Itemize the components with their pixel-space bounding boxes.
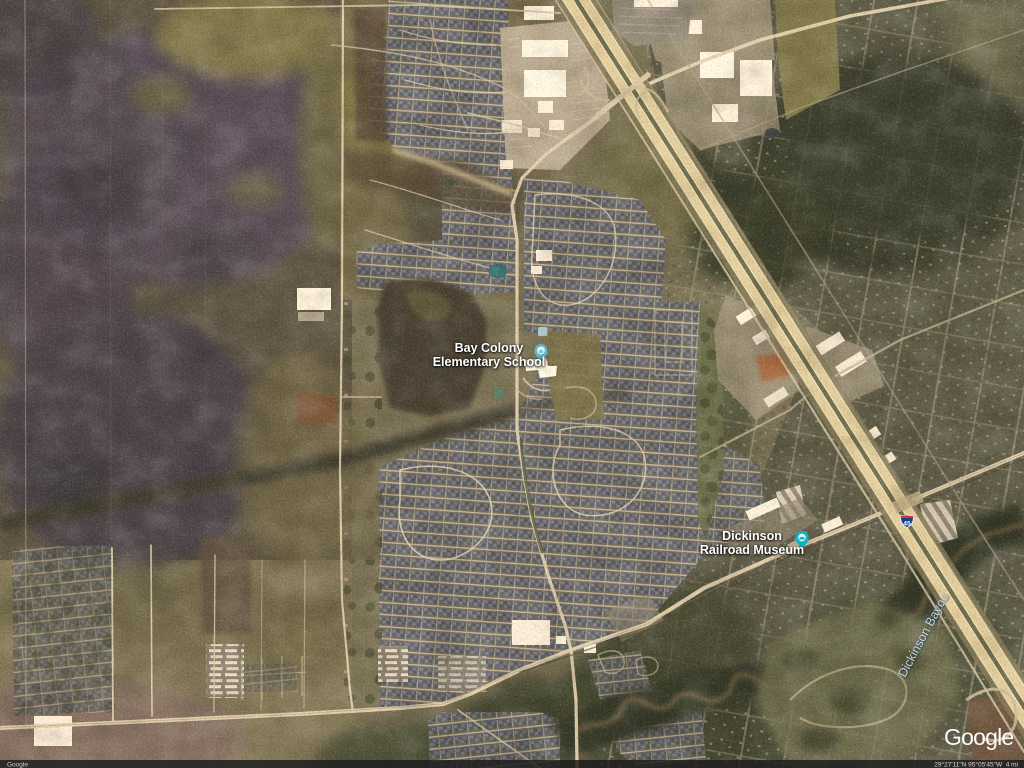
svg-text:Google: Google: [7, 762, 28, 768]
svg-text:Railroad Museum: Railroad Museum: [700, 543, 804, 557]
svg-text:29°27'11"N 95°05'45"W 4 mi: 29°27'11"N 95°05'45"W 4 mi: [934, 761, 1018, 768]
svg-text:Elementary School: Elementary School: [433, 355, 546, 369]
svg-text:Bay Colony: Bay Colony: [455, 341, 524, 355]
svg-text:Google: Google: [944, 724, 1013, 750]
svg-text:45: 45: [903, 520, 911, 527]
svg-text:Dickinson: Dickinson: [722, 529, 782, 543]
